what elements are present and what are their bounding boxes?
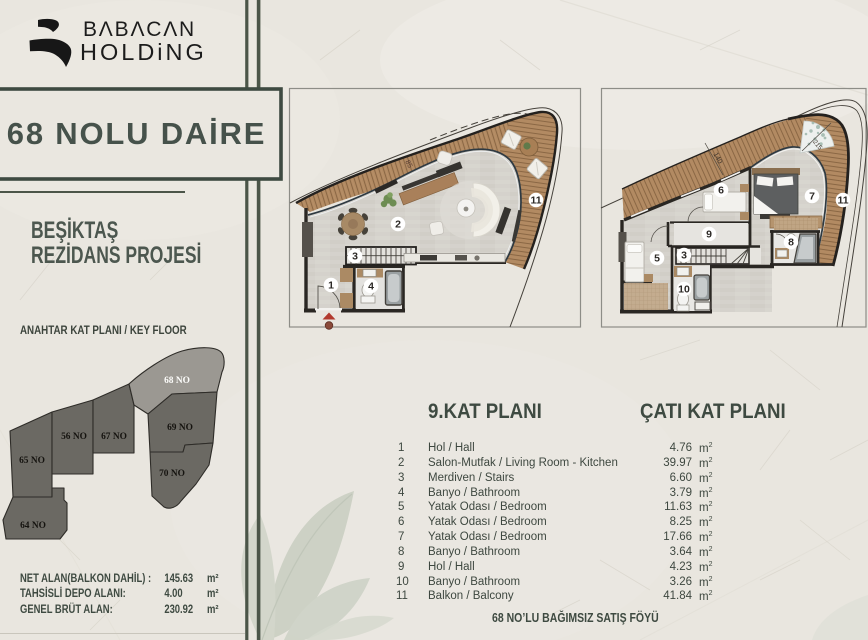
svg-text:56 NO: 56 NO xyxy=(61,432,87,442)
svg-text:7: 7 xyxy=(809,191,815,203)
svg-text:3: 3 xyxy=(681,250,687,262)
svg-text:11: 11 xyxy=(530,195,541,207)
svg-text:1: 1 xyxy=(328,280,334,292)
svg-text:9: 9 xyxy=(706,229,712,241)
svg-text:70 NO: 70 NO xyxy=(159,469,185,479)
svg-text:2: 2 xyxy=(395,219,401,231)
svg-text:3: 3 xyxy=(352,251,358,263)
svg-text:10: 10 xyxy=(678,284,690,296)
svg-text:5: 5 xyxy=(654,253,660,265)
svg-text:11: 11 xyxy=(837,195,848,207)
svg-text:6: 6 xyxy=(718,185,724,197)
svg-text:64 NO: 64 NO xyxy=(20,521,46,531)
svg-text:4: 4 xyxy=(368,281,374,293)
svg-text:69 NO: 69 NO xyxy=(167,423,193,433)
svg-text:65 NO: 65 NO xyxy=(19,456,45,466)
svg-text:67 NO: 67 NO xyxy=(101,432,127,442)
svg-text:8: 8 xyxy=(788,237,794,249)
svg-text:68 NO: 68 NO xyxy=(164,376,190,386)
